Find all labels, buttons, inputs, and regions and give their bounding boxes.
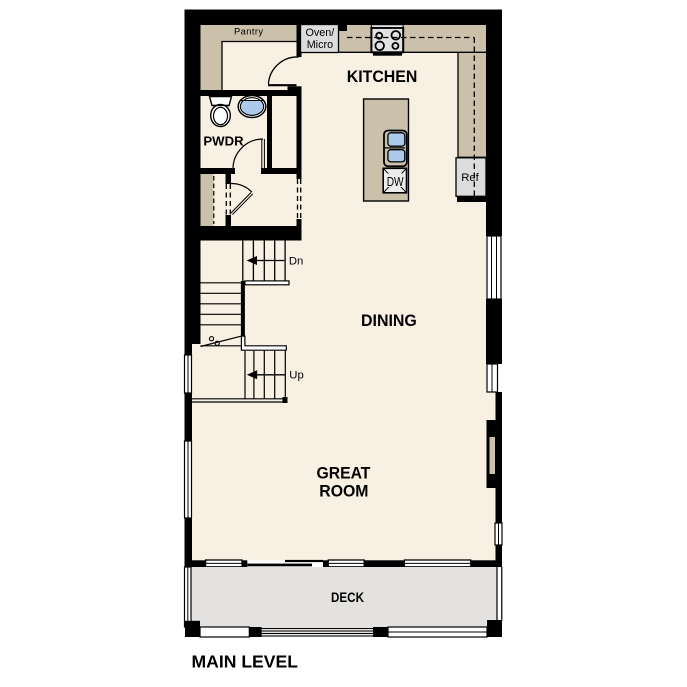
svg-text:ROOM: ROOM xyxy=(319,482,368,500)
svg-text:DECK: DECK xyxy=(331,590,364,605)
svg-text:DW: DW xyxy=(387,174,404,189)
svg-text:Oven/: Oven/ xyxy=(305,27,334,39)
svg-text:Dn: Dn xyxy=(289,255,303,267)
svg-text:Pantry: Pantry xyxy=(234,26,264,37)
svg-text:MAIN LEVEL: MAIN LEVEL xyxy=(192,652,299,672)
svg-text:KITCHEN: KITCHEN xyxy=(347,68,418,86)
svg-text:Up: Up xyxy=(289,369,303,381)
svg-text:GREAT: GREAT xyxy=(317,464,371,482)
svg-text:Micro: Micro xyxy=(307,39,333,51)
svg-text:DINING: DINING xyxy=(361,312,417,330)
svg-text:Ref: Ref xyxy=(461,172,479,184)
svg-text:PWDR: PWDR xyxy=(203,134,243,148)
